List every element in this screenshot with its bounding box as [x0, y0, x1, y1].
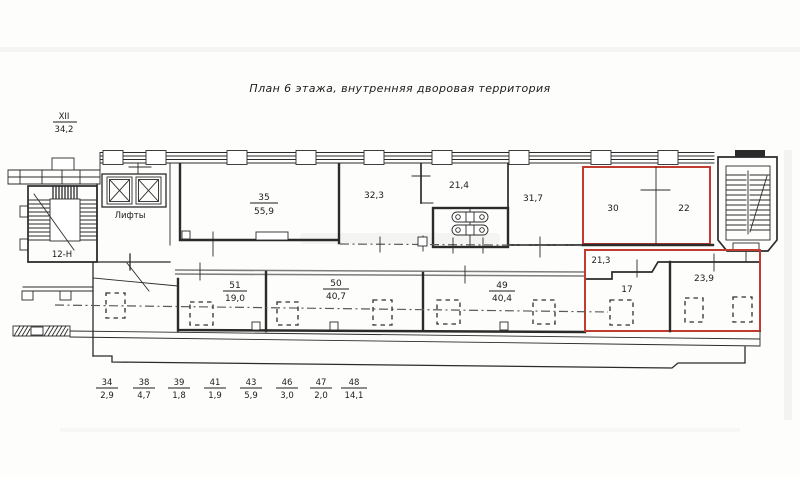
svg-text:14,1: 14,1	[345, 391, 364, 401]
dimension-item: 41 1,9	[204, 378, 226, 401]
red-highlight-upper-unit: 30 22	[583, 167, 713, 245]
svg-text:46: 46	[282, 378, 293, 388]
corner-mark-den: 34,2	[55, 125, 74, 135]
room-area: 23,9	[694, 274, 714, 284]
svg-text:48: 48	[349, 378, 360, 388]
dimension-item: 39 1,8	[168, 378, 190, 401]
scan-streak-top	[0, 47, 800, 52]
dimension-item: 43 5,9	[240, 378, 262, 401]
dimension-item: 46 3,0	[276, 378, 298, 401]
svg-text:1,9: 1,9	[208, 391, 222, 401]
dimension-item: 38 4,7	[133, 378, 155, 401]
elevators-label: Лифты	[115, 211, 146, 221]
room-area: 55,9	[254, 207, 274, 217]
fixture-icon	[452, 225, 488, 235]
dimension-item: 47 2,0	[310, 378, 332, 401]
room-number: 17	[621, 285, 632, 295]
scanned-floor-plan-page: План 6 этажа, внутренняя дворовая террит…	[0, 0, 800, 477]
elevator-block: Лифты	[102, 163, 170, 245]
room-area: 21,3	[592, 256, 611, 266]
corner-landing-mark: XII 34,2	[53, 112, 77, 135]
svg-text:5,9: 5,9	[244, 391, 258, 401]
dimension-item: 34 2,9	[96, 378, 118, 401]
fixture-icon	[452, 212, 488, 222]
scan-streak-bottom	[60, 428, 740, 432]
room-number: 22	[678, 204, 689, 214]
stair-run-arrow	[750, 176, 767, 232]
room-area: 31,7	[523, 194, 543, 204]
svg-text:1,8: 1,8	[172, 391, 186, 401]
room-21-4: 21,4	[449, 181, 469, 191]
svg-text:41: 41	[210, 378, 221, 388]
room-area: 32,3	[364, 191, 384, 201]
room-number: 49	[496, 281, 508, 291]
svg-text:38: 38	[139, 378, 150, 388]
room-number: 51	[229, 281, 240, 291]
room-area: 40,7	[326, 292, 346, 302]
room-area: 21,4	[449, 181, 469, 191]
svg-text:43: 43	[246, 378, 257, 388]
svg-text:39: 39	[174, 378, 185, 388]
room-area: 40,4	[492, 294, 512, 304]
lower-rooms: 51 19,0 50 40,7 49 40,4	[178, 272, 585, 332]
corner-mark-num: XII	[59, 112, 70, 122]
room-area: 19,0	[225, 294, 245, 304]
building-lower-outline	[13, 287, 760, 368]
roof-hatches	[55, 293, 752, 325]
stair-label: 12-Н	[52, 250, 72, 260]
room-number: 50	[330, 279, 342, 289]
dimension-item: 48 14,1	[341, 378, 367, 401]
scan-streak-right	[784, 150, 792, 420]
svg-text:2,0: 2,0	[314, 391, 328, 401]
svg-text:4,7: 4,7	[137, 391, 151, 401]
right-staircase	[718, 150, 777, 262]
page-title: План 6 этажа, внутренняя дворовая террит…	[249, 82, 550, 95]
left-exterior-wall	[8, 158, 100, 184]
dimension-row: 34 2,9 38 4,7 39 1,8 41 1,9 43 5,9 46 3,…	[96, 378, 367, 401]
svg-text:47: 47	[316, 378, 327, 388]
room-31-7: 31,7	[508, 164, 583, 257]
corridor-lower-wall	[93, 254, 760, 291]
svg-text:2,9: 2,9	[100, 391, 114, 401]
room-32-3: 32,3	[364, 164, 433, 203]
floor-plan-drawing: План 6 этажа, внутренняя дворовая террит…	[0, 0, 800, 477]
svg-text:34: 34	[102, 378, 113, 388]
room-number: 30	[607, 204, 619, 214]
room-number: 35	[258, 193, 269, 203]
svg-text:3,0: 3,0	[280, 391, 294, 401]
